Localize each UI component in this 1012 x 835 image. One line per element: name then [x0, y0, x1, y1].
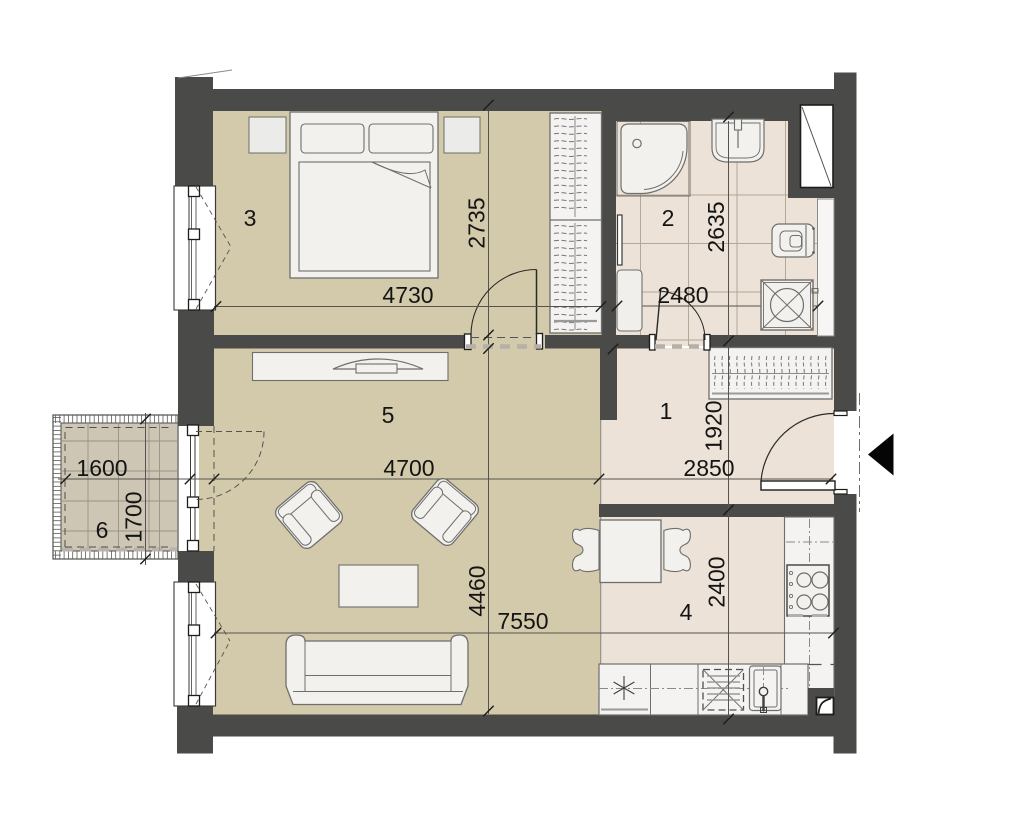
svg-text:4730: 4730 — [382, 282, 433, 308]
svg-text:5: 5 — [382, 402, 395, 428]
svg-text:2850: 2850 — [683, 455, 734, 481]
svg-text:2735: 2735 — [464, 197, 490, 248]
svg-text:2480: 2480 — [657, 282, 708, 308]
svg-text:1920: 1920 — [701, 400, 727, 451]
svg-text:1: 1 — [660, 398, 673, 424]
svg-text:3: 3 — [244, 205, 257, 231]
svg-text:1700: 1700 — [121, 491, 147, 542]
svg-text:1600: 1600 — [76, 455, 127, 481]
svg-text:2635: 2635 — [703, 201, 729, 252]
svg-text:2: 2 — [662, 205, 675, 231]
svg-text:4460: 4460 — [464, 565, 490, 616]
svg-text:7550: 7550 — [497, 608, 548, 634]
svg-text:2400: 2400 — [704, 556, 730, 607]
svg-text:6: 6 — [96, 517, 109, 543]
svg-text:4700: 4700 — [383, 455, 434, 481]
svg-text:4: 4 — [680, 599, 693, 625]
